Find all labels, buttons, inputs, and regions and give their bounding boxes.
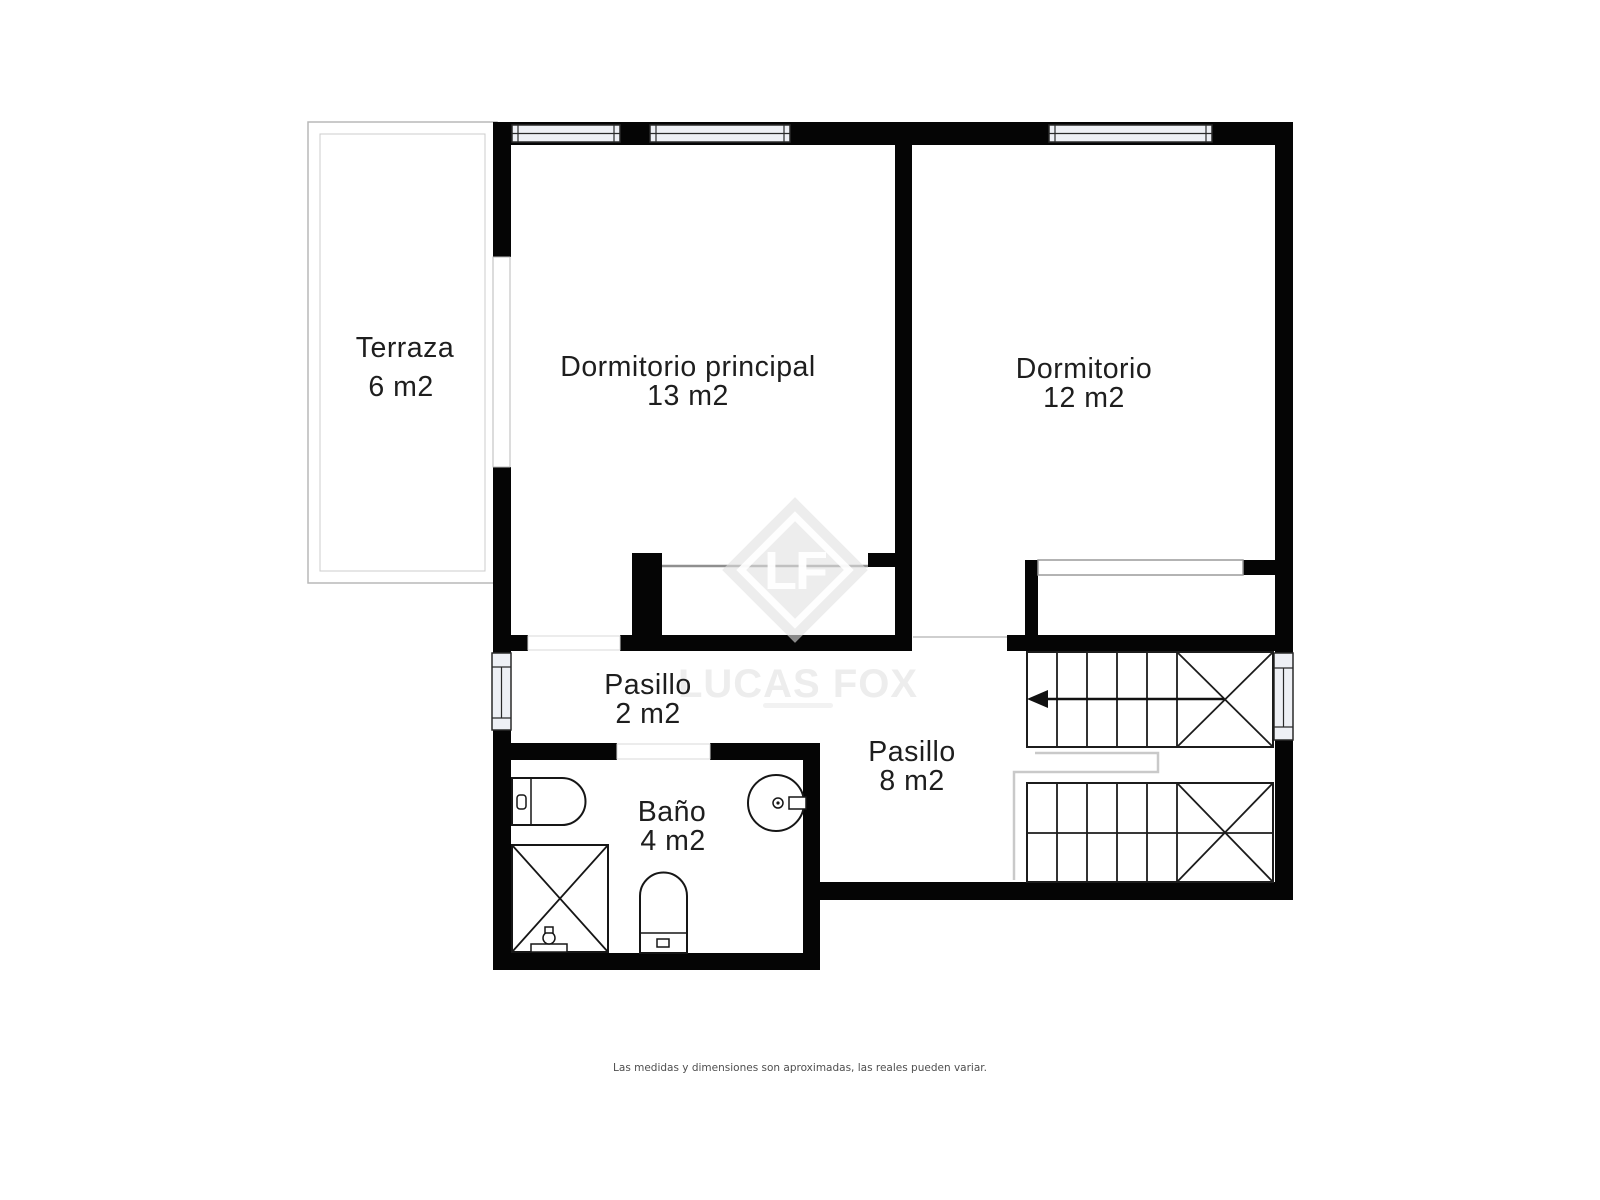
watermark-diamond: LF [722,497,868,643]
stairs [1014,652,1273,882]
bidet-icon [640,873,687,954]
toilet-icon [512,778,585,825]
wall-bottom [803,882,1293,900]
wall-bath-bottom [493,953,820,970]
window-right-stairs [1274,653,1293,740]
wall-hall-b [710,743,820,760]
label-dormitorio-area: 12 m2 [1043,382,1125,414]
window-top-2 [650,125,790,142]
label-pasillo2-area: 2 m2 [615,698,680,730]
watermark-monogram: LF [764,541,827,601]
label-dormitorio-name: Dormitorio [1016,353,1152,385]
wall-closet1-stub [868,553,895,567]
wall-right-lower [1275,740,1293,900]
wall-bedroom-divider [895,143,912,651]
watermark: LF LUCAS FOX [678,497,918,708]
label-pasillo2-name: Pasillo [604,669,691,701]
wall-left-upper [493,122,511,257]
wall-left-lower [493,730,511,970]
label-dormitorio-principal-name: Dormitorio principal [560,351,816,383]
wall-south-a [510,635,528,651]
watermark-brand-text: LUCAS FOX [678,662,918,706]
wall-right-upper [1275,122,1293,653]
label-pasillo8-area: 8 m2 [879,765,944,797]
window-left-hall [492,653,511,730]
floor-plan-page: LF LUCAS FOX Terraza 6 m2 Dormitorio pri… [0,0,1600,1200]
wall-closet2-left [1025,560,1038,651]
wall-south-b [620,635,911,651]
wall-closet1-left [632,553,662,651]
label-bano-area: 4 m2 [640,825,705,857]
watermark-tagline-bar [763,703,833,708]
floor-plan-svg: LF LUCAS FOX Terraza 6 m2 Dormitorio pri… [0,0,1600,1200]
door-dormitorio-principal [528,636,620,650]
disclaimer-text: Las medidas y dimensiones son aproximada… [613,1062,987,1074]
washbasin-icon [748,775,806,831]
wall-closet2-corner [1243,560,1277,575]
label-bano-name: Baño [638,796,707,828]
window-top-3 [1049,125,1212,142]
wall-left-mid [493,467,511,653]
label-terraza-area: 6 m2 [368,371,433,403]
label-terraza-name: Terraza [356,332,455,364]
door-bano [617,744,710,759]
label-dormitorio-principal-area: 13 m2 [647,380,729,412]
wall-bath-right [803,743,820,970]
closet2-sliding-door [1038,560,1243,575]
wall-hall-a [510,743,617,760]
terrace-door-opening [493,257,510,467]
wall-stairs-top [1007,635,1293,651]
label-pasillo8-name: Pasillo [868,736,955,768]
window-top-1 [512,125,620,142]
shower-icon [512,845,608,952]
